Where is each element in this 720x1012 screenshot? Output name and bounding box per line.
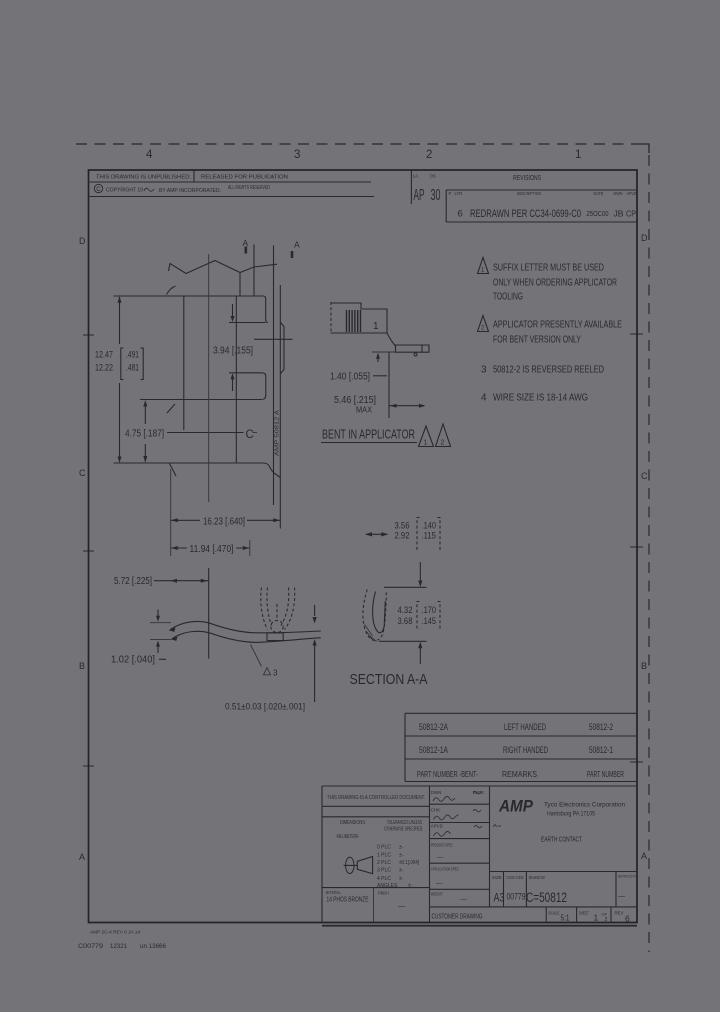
svg-text:SECTION A-A: SECTION A-A — [350, 671, 428, 688]
svg-text:.491: .491 — [126, 350, 139, 361]
svg-text:SCALE: SCALE — [548, 911, 559, 916]
svg-text:4.75 [.187]: 4.75 [.187] — [125, 429, 164, 440]
svg-text:C: C — [96, 186, 101, 193]
svg-text:DWN: DWN — [614, 191, 623, 196]
svg-text:EARTH CONTACT: EARTH CONTACT — [541, 835, 582, 844]
svg-text:00779: 00779 — [507, 892, 526, 902]
svg-text:AMP 2C-4 REV 0 JA 14: AMP 2C-4 REV 0 JA 14 — [90, 930, 140, 935]
svg-text:DS: DS — [430, 174, 436, 179]
svg-text:2: 2 — [426, 149, 432, 161]
svg-text:30: 30 — [431, 187, 441, 204]
svg-text:DIMENSIONS:: DIMENSIONS: — [340, 820, 366, 826]
svg-text:JB: JB — [614, 209, 624, 219]
svg-text:6: 6 — [458, 209, 463, 220]
svg-text:BY AMP INCORPORATED.: BY AMP INCORPORATED. — [159, 188, 221, 194]
svg-text:1: 1 — [424, 440, 428, 447]
svg-text:DESCRIPTION: DESCRIPTION — [517, 191, 541, 196]
svg-text:3: 3 — [273, 669, 278, 678]
svg-text:A: A — [641, 851, 647, 861]
svg-text:THIS DRAWING IS A CONTROLLED D: THIS DRAWING IS A CONTROLLED DOCUMENT. — [327, 795, 425, 801]
svg-text:4: 4 — [481, 393, 487, 404]
svg-text:±-: ±- — [399, 876, 404, 882]
svg-text:—: — — [436, 880, 443, 887]
svg-text:25OC00: 25OC00 — [587, 211, 609, 218]
svg-text:4 PLC: 4 PLC — [377, 876, 391, 882]
svg-text:REV: REV — [615, 911, 624, 916]
svg-text:AMP: AMP — [498, 798, 534, 816]
svg-text:AMP 50812 A: AMP 50812 A — [275, 409, 281, 456]
svg-text:1: 1 — [594, 913, 599, 923]
svg-text:ONLY WHEN ORDERING APPLICATOR: ONLY WHEN ORDERING APPLICATOR — [493, 278, 617, 289]
svg-text:un 13666: un 13666 — [140, 944, 167, 950]
svg-text:REMARKS: REMARKS — [502, 769, 537, 779]
svg-text:FOR BENT VERSION ONLY: FOR BENT VERSION ONLY — [493, 335, 581, 346]
svg-text:AP: AP — [414, 187, 425, 204]
svg-text:CAGE CODE: CAGE CODE — [507, 875, 524, 880]
svg-text:APPLICATION SPEC: APPLICATION SPEC — [431, 866, 459, 871]
svg-text:1: 1 — [373, 321, 379, 332]
svg-text:SIZE: SIZE — [492, 875, 502, 880]
svg-text:D: D — [79, 236, 86, 246]
svg-text:REDRAWN PER CC34-0699-C0: REDRAWN PER CC34-0699-C0 — [470, 208, 581, 220]
svg-text:CHK: CHK — [431, 807, 440, 812]
svg-text:P: P — [449, 191, 452, 196]
svg-text:TOOLING: TOOLING — [493, 292, 523, 303]
svg-text:LEFT HANDED: LEFT HANDED — [504, 722, 546, 732]
svg-text:ALL RIGHTS RESERVED: ALL RIGHTS RESERVED — [228, 185, 270, 191]
svg-text:MATERIAL: MATERIAL — [326, 890, 341, 895]
svg-text:3: 3 — [294, 149, 300, 161]
svg-text:C: C — [79, 468, 86, 478]
svg-text:5:1: 5:1 — [561, 913, 570, 923]
svg-text:3.68: 3.68 — [398, 616, 413, 626]
svg-text:1 PLC: 1 PLC — [377, 852, 391, 858]
svg-text:±-: ±- — [399, 845, 404, 851]
svg-text:DATE: DATE — [594, 191, 604, 196]
svg-text:PART NUMBER: PART NUMBER — [587, 769, 624, 779]
svg-text:APVD: APVD — [431, 824, 443, 829]
svg-text:3: 3 — [481, 365, 487, 376]
svg-text:B: B — [79, 661, 85, 671]
svg-text:5.72 [.225]: 5.72 [.225] — [114, 576, 152, 587]
svg-text:A3: A3 — [494, 891, 505, 905]
svg-text:C=50812: C=50812 — [526, 890, 567, 905]
svg-text:B: B — [641, 661, 647, 671]
svg-text:50812-1A: 50812-1A — [419, 745, 448, 755]
svg-text:11.94 [.470]: 11.94 [.470] — [190, 544, 234, 555]
svg-text:-MILLIMETERS-: -MILLIMETERS- — [336, 834, 359, 840]
svg-text:16.23 [.640]: 16.23 [.640] — [203, 516, 245, 527]
svg-text:WIRE SIZE IS 18-14 AWG: WIRE SIZE IS 18-14 AWG — [493, 393, 588, 404]
svg-text:RESTRICTED TO: RESTRICTED TO — [618, 873, 636, 878]
svg-text:SHEET: SHEET — [579, 911, 589, 916]
svg-text:—: — — [398, 904, 405, 911]
svg-text:12.22: 12.22 — [95, 363, 113, 374]
svg-text:50812-2A: 50812-2A — [419, 722, 448, 732]
svg-text:5.46 [.215]: 5.46 [.215] — [334, 395, 376, 406]
svg-text:.170: .170 — [422, 605, 437, 615]
svg-text:2: 2 — [441, 440, 445, 447]
svg-text:1.02 [.040]: 1.02 [.040] — [111, 655, 155, 666]
svg-text:12321: 12321 — [110, 944, 128, 950]
svg-text:CUSTOMER DRAWING: CUSTOMER DRAWING — [432, 912, 483, 921]
svg-text:12.47: 12.47 — [95, 350, 113, 361]
svg-text:MAX: MAX — [356, 406, 373, 415]
svg-text:1: 1 — [575, 149, 581, 161]
svg-text:RIGHT HANDED: RIGHT HANDED — [503, 745, 548, 755]
svg-text:DWN: DWN — [431, 790, 442, 795]
svg-text:4: 4 — [146, 149, 153, 161]
svg-text:A: A — [79, 852, 85, 862]
svg-text:2 PLC: 2 PLC — [377, 860, 391, 866]
svg-text:3 PLC: 3 PLC — [377, 868, 391, 874]
svg-text:4.32: 4.32 — [398, 605, 413, 615]
svg-text:50812-2: 50812-2 — [589, 722, 613, 732]
svg-text:3.94 [.155]: 3.94 [.155] — [213, 346, 253, 357]
svg-text:—: — — [618, 894, 625, 901]
svg-text:THIS DRAWING IS UNPUBLISHED.: THIS DRAWING IS UNPUBLISHED. — [96, 175, 191, 181]
svg-text:50812-2 IS REVERSED REELED: 50812-2 IS REVERSED REELED — [493, 365, 604, 376]
svg-text:LTR: LTR — [455, 191, 463, 196]
svg-text:WEIGHT: WEIGHT — [431, 891, 443, 896]
svg-text:PRODUCT SPEC: PRODUCT SPEC — [431, 842, 453, 847]
svg-text:- -: - - — [267, 174, 274, 180]
svg-text:PART NUMBER -BENT-: PART NUMBER -BENT- — [417, 769, 478, 779]
svg-text:A: A — [294, 240, 300, 250]
svg-text:CP: CP — [626, 209, 636, 219]
svg-text:6: 6 — [625, 914, 630, 924]
svg-text:DRAWING NO: DRAWING NO — [529, 875, 545, 880]
svg-text:±-: ±- — [399, 868, 404, 874]
svg-text:50812-1: 50812-1 — [589, 745, 613, 755]
svg-text:RELEASED FOR PUBLICATION: RELEASED FOR PUBLICATION — [201, 175, 288, 181]
svg-text:1.40 [.055]: 1.40 [.055] — [330, 372, 370, 383]
svg-text:.481: .481 — [126, 363, 139, 374]
svg-text:±-: ±- — [399, 852, 404, 858]
svg-text:.145: .145 — [422, 616, 437, 626]
svg-text:FINISH: FINISH — [378, 891, 389, 896]
svg-text:APPLICATOR PRESENTLY AVAILABLE: APPLICATOR PRESENTLY AVAILABLE — [493, 320, 622, 331]
svg-text:BENT IN APPLICATOR: BENT IN APPLICATOR — [322, 428, 415, 442]
svg-text:OTHERWISE SPECIFIED:: OTHERWISE SPECIFIED: — [384, 827, 423, 833]
svg-text:COPYRIGHT 19: COPYRIGHT 19 — [106, 188, 143, 194]
svg-text:±0.1[.004]: ±0.1[.004] — [399, 860, 420, 866]
svg-text:Tyco Electronics Corporation: Tyco Electronics Corporation — [544, 803, 625, 809]
svg-text:2.92: 2.92 — [395, 531, 410, 541]
svg-text:LA: LA — [413, 174, 418, 179]
svg-text:—: — — [437, 854, 444, 861]
svg-text:0 PLC: 0 PLC — [377, 845, 391, 851]
svg-text:2: 2 — [605, 917, 608, 923]
svg-text:OF: OF — [602, 912, 608, 917]
svg-text:.140: .140 — [422, 521, 437, 531]
svg-text:.115: .115 — [422, 531, 437, 541]
svg-text:REVISIONS: REVISIONS — [513, 173, 541, 182]
svg-text:TOLERANCES UNLESS: TOLERANCES UNLESS — [387, 820, 422, 826]
svg-text:Harrisburg PA 17105: Harrisburg PA 17105 — [547, 812, 596, 818]
svg-text:3.56: 3.56 — [395, 521, 410, 531]
svg-text:—: — — [461, 896, 468, 903]
svg-text:C00779: C00779 — [78, 943, 103, 950]
svg-text:0.51±0.03 [.020±.001]: 0.51±0.03 [.020±.001] — [225, 702, 305, 713]
svg-text:APVD: APVD — [627, 191, 637, 196]
svg-text:C: C — [246, 429, 254, 441]
svg-text:D: D — [641, 233, 648, 243]
svg-text:14 PHOS BRONZE: 14 PHOS BRONZE — [327, 897, 369, 904]
svg-text:C: C — [641, 471, 648, 481]
svg-text:SUFFIX LETTER MUST BE USED: SUFFIX LETTER MUST BE USED — [493, 263, 604, 274]
